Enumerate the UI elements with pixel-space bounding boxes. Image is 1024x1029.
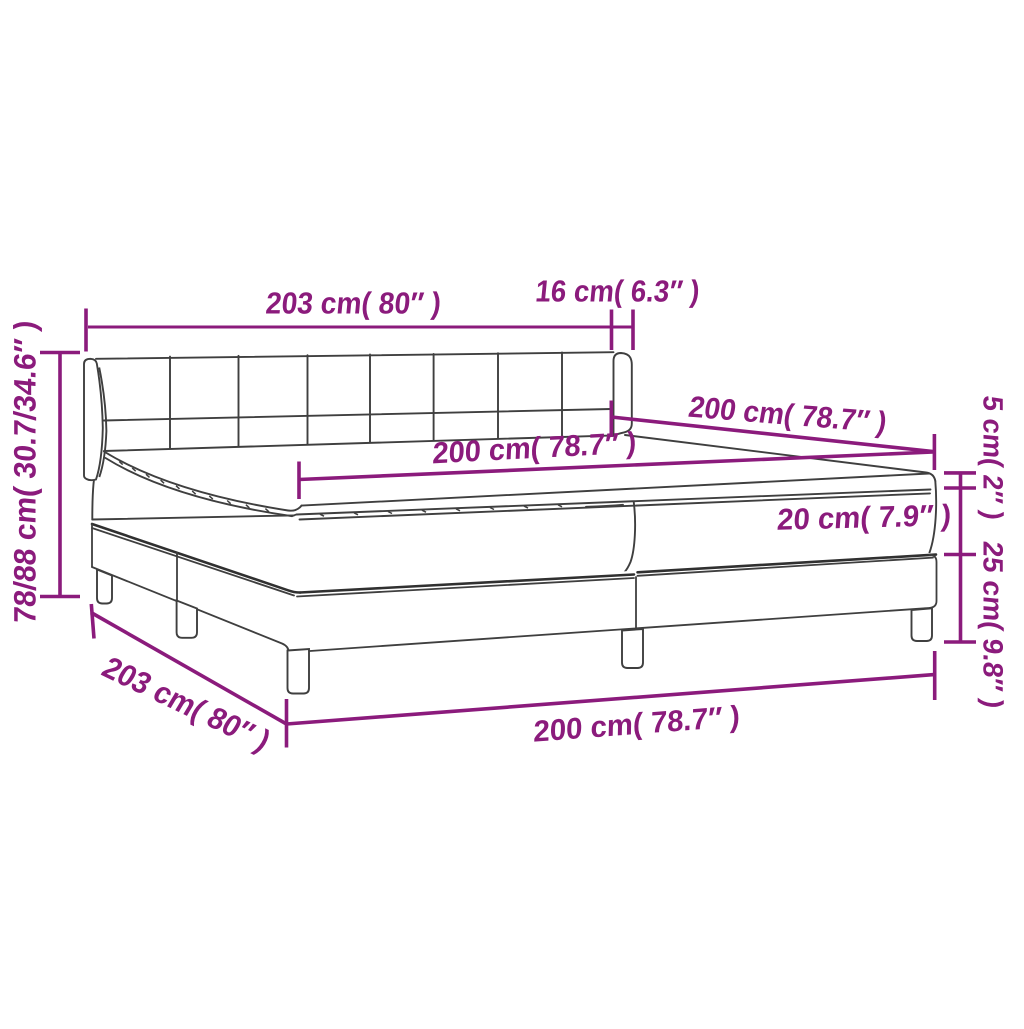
svg-text:25 cm( 9.8″ ): 25 cm( 9.8″ ) xyxy=(978,540,1009,710)
svg-text:5 cm( 2″ ): 5 cm( 2″ ) xyxy=(978,394,1009,521)
svg-text:16 cm( 6.3″ ): 16 cm( 6.3″ ) xyxy=(534,275,701,309)
svg-text:203 cm( 80″ ): 203 cm( 80″ ) xyxy=(264,287,442,321)
svg-text:20 cm( 7.9″ ): 20 cm( 7.9″ ) xyxy=(776,499,952,537)
svg-text:78/88 cm( 30.7/34.6″ ): 78/88 cm( 30.7/34.6″ ) xyxy=(8,319,43,625)
